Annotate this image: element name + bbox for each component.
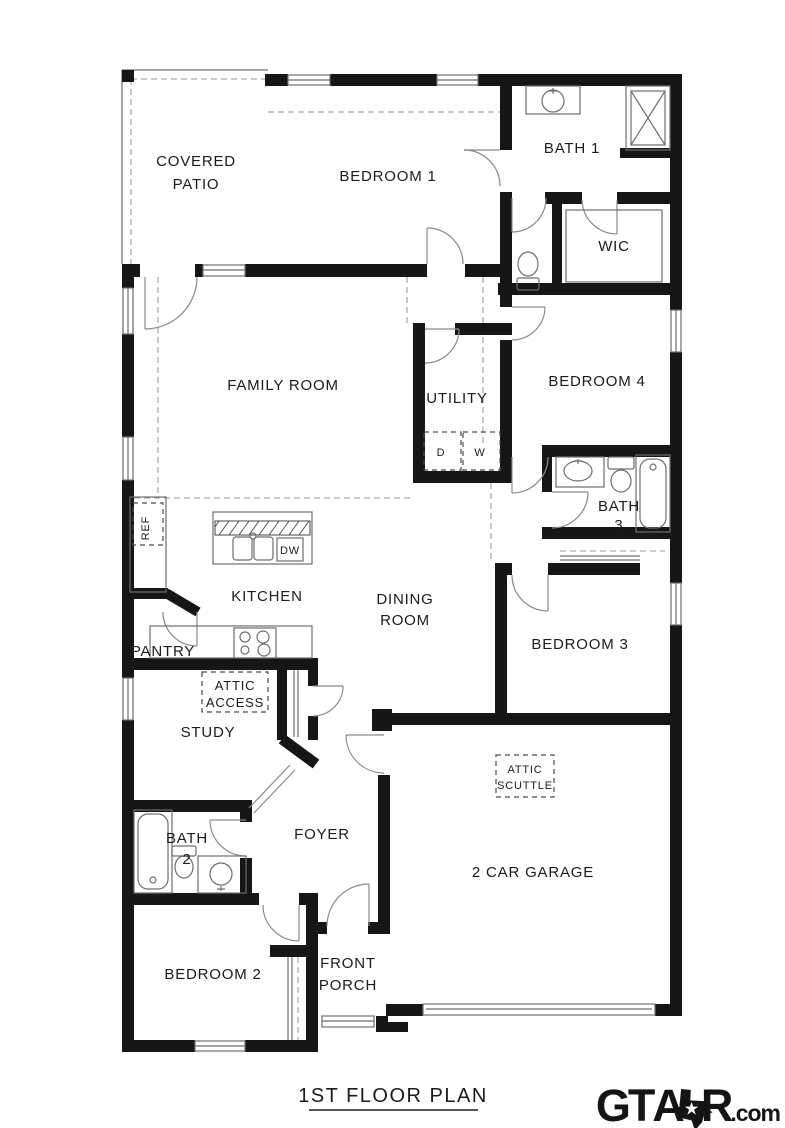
shower-icon (626, 86, 670, 150)
label-bath-3-1: BATH (598, 498, 640, 515)
cased-opening (249, 765, 295, 813)
texas-star-icon (670, 1089, 714, 1128)
window-icon (123, 678, 133, 720)
sink-icon (198, 856, 246, 893)
closet-bypass-doors (560, 551, 665, 560)
label-bedroom-1: BEDROOM 1 (339, 168, 436, 185)
label-attic-scuttle-1: ATTIC (508, 764, 543, 776)
door-swing-icon (313, 686, 343, 716)
floor-plan-drawing: COVEREDPATIOBEDROOM 1BATH 1WICFAMILY ROO… (0, 0, 785, 1128)
window-icon (671, 310, 681, 352)
label-wic: WIC (598, 238, 630, 255)
door-swing-icon (327, 884, 369, 926)
label-kitchen: KITCHEN (231, 588, 302, 605)
angled-wall (282, 739, 316, 764)
label-bedroom-4: BEDROOM 4 (548, 373, 645, 390)
garage-door-icon (423, 1004, 655, 1015)
label-family-room: FAMILY ROOM (227, 377, 339, 394)
label-bath-1: BATH 1 (544, 140, 600, 157)
closet-rod-lines (294, 670, 298, 737)
label-pantry: PANTRY (131, 643, 195, 660)
label-foyer: FOYER (294, 826, 350, 843)
label-bedroom-2: BEDROOM 2 (164, 966, 261, 983)
double-sink-icon (233, 533, 273, 560)
door-swing-icon (346, 735, 384, 773)
sink-icon (526, 86, 580, 114)
label-bedroom-3: BEDROOM 3 (531, 636, 628, 653)
sink-icon (556, 457, 604, 487)
door-swing-icon (427, 228, 463, 264)
door-swing-icon (163, 612, 197, 646)
walls (122, 74, 682, 1052)
label-attic-access-1: ATTIC (215, 678, 256, 693)
door-swing-icon (263, 905, 299, 941)
label-front-porch-1: FRONT (320, 955, 376, 972)
gtar-logo: GT A R .com (596, 1083, 780, 1128)
label-attic-access-2: ACCESS (206, 695, 264, 710)
door-swing-icon (210, 820, 246, 856)
door-swing-icon (512, 307, 545, 340)
label-garage: 2 CAR GARAGE (472, 864, 594, 881)
label-dining-room-2: ROOM (380, 612, 430, 629)
window-icon (203, 265, 245, 276)
pantry-angled-wall (166, 593, 198, 612)
window-icon (123, 288, 133, 334)
label-bath-3-2: 3 (614, 517, 623, 534)
label-attic-scuttle-2: SCUTTLE (497, 780, 553, 792)
stove-icon (234, 628, 276, 658)
label-dryer: D (437, 447, 446, 459)
label-dining-room-1: DINING (376, 591, 433, 608)
label-front-porch-2: PORCH (319, 977, 377, 994)
bathtub-icon (636, 455, 670, 532)
window-icon (671, 583, 681, 625)
window-icon (288, 75, 330, 85)
label-covered-patio-1: COVERED (156, 153, 236, 170)
window-icon (437, 75, 478, 85)
bathtub-icon (134, 810, 172, 893)
patio-post (122, 70, 134, 82)
plan-title: 1ST FLOOR PLAN (298, 1085, 488, 1107)
door-swing-icon (145, 277, 197, 329)
closet-bypass-doors (288, 957, 298, 1040)
door-swing-icon (512, 198, 546, 232)
label-utility: UTILITY (426, 390, 487, 407)
label-bath-2-2: 2 (182, 851, 191, 868)
logo-text-com: .com (730, 1100, 780, 1127)
door-swing-icon (425, 329, 459, 363)
logo-text-gt: GT (596, 1083, 653, 1128)
porch-steps-icon (322, 1016, 374, 1027)
floor-plan-page: COVEREDPATIOBEDROOM 1BATH 1WICFAMILY ROO… (0, 0, 785, 1128)
window-icon (195, 1041, 245, 1051)
toilet-icon (608, 457, 634, 492)
label-ref: REF (140, 516, 152, 540)
door-swing-icon (582, 200, 617, 234)
label-washer: W (474, 447, 485, 459)
label-bath-2-1: BATH (166, 830, 208, 847)
label-dishwasher: DW (280, 545, 300, 557)
label-covered-patio-2: PATIO (173, 176, 220, 193)
door-swing-icon (552, 492, 588, 528)
door-swing-icon (512, 575, 548, 611)
island-bar-hatch (215, 521, 310, 535)
door-swing-icon (464, 150, 500, 186)
label-study: STUDY (181, 724, 236, 741)
window-icon (123, 437, 133, 480)
